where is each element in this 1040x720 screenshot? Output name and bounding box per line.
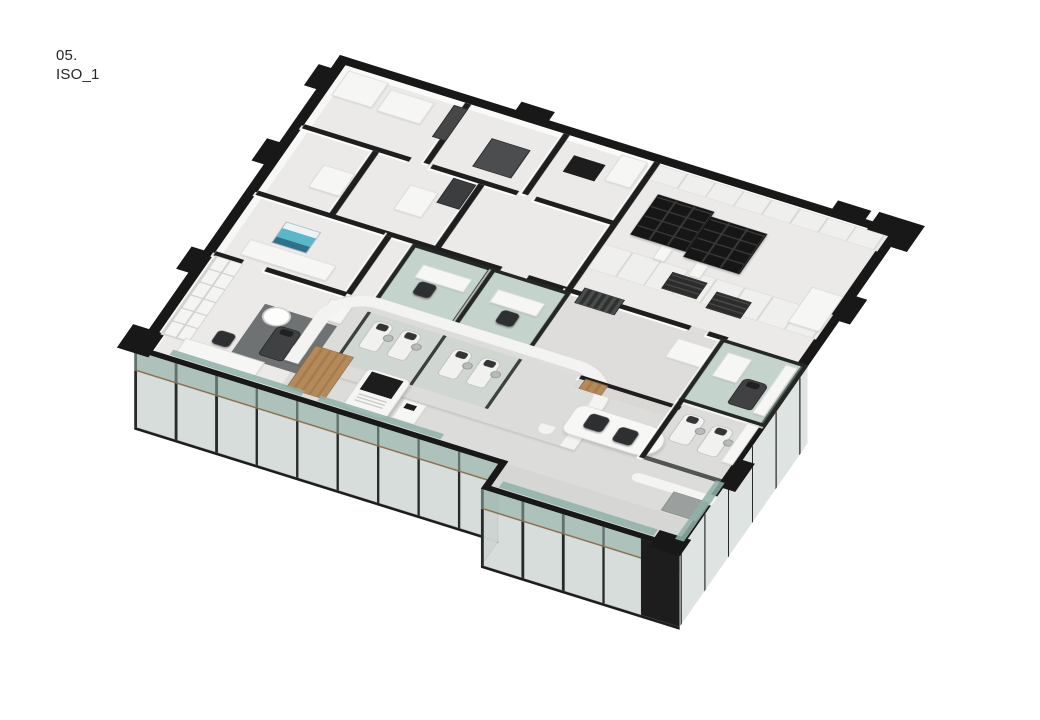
wall: [534, 197, 614, 225]
wall: [255, 191, 390, 236]
drawing-title: ISO_1: [56, 65, 100, 84]
cbct-scanner: [472, 138, 530, 178]
cabinet: [393, 184, 438, 217]
wall: [522, 133, 570, 195]
drawing-number: 05.: [56, 46, 100, 65]
dark-door: [432, 105, 468, 141]
wall: [345, 235, 391, 295]
office-chair: [210, 330, 237, 348]
dark-table: [563, 155, 606, 181]
floor-plan: · · · · ·: [135, 55, 903, 525]
wall: [302, 124, 412, 162]
drawing-label: 05. ISO_1: [56, 46, 100, 84]
outer-wall-northwest: [135, 55, 351, 352]
